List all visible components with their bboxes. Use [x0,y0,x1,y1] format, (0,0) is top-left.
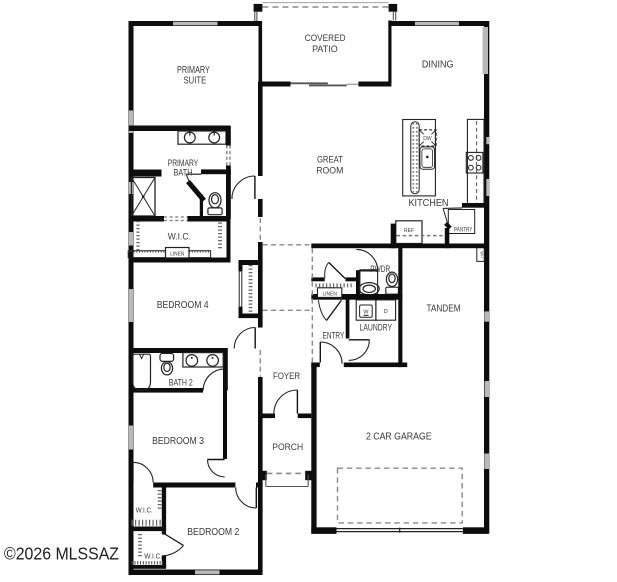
svg-text:PORCH: PORCH [272,442,303,453]
svg-text:LAUNDRY: LAUNDRY [360,323,393,333]
svg-text:PRIMARY: PRIMARY [168,158,199,168]
svg-text:D: D [384,309,388,315]
svg-text:SUITE: SUITE [184,75,207,86]
svg-text:BEDROOM 4: BEDROOM 4 [157,300,209,311]
svg-text:PWDR: PWDR [370,264,390,274]
svg-text:LINEN: LINEN [322,291,337,297]
svg-text:KITCHEN: KITCHEN [408,198,448,209]
svg-text:DINING: DINING [422,59,454,70]
svg-text:©2026 MLSSAZ: ©2026 MLSSAZ [4,544,119,564]
svg-text:BATH 2: BATH 2 [169,377,193,387]
svg-text:PATIO: PATIO [312,44,338,55]
svg-text:REF: REF [404,228,414,234]
svg-text:WH: WH [480,251,484,258]
svg-text:W.I.C.: W.I.C. [168,232,191,242]
svg-text:LINEN: LINEN [170,251,184,257]
svg-text:COVERED: COVERED [305,33,346,44]
svg-text:TANDEM: TANDEM [426,304,460,315]
svg-text:2 CAR GARAGE: 2 CAR GARAGE [366,432,432,443]
svg-text:DW: DW [423,136,432,142]
svg-text:W.I.C.: W.I.C. [136,505,153,514]
svg-text:W.I.C.: W.I.C. [144,552,162,561]
svg-text:BATH: BATH [174,168,193,178]
svg-text:W: W [363,310,369,316]
svg-text:FOYER: FOYER [273,371,300,382]
svg-text:BEDROOM 2: BEDROOM 2 [187,527,239,538]
svg-text:ENTRY: ENTRY [323,331,345,341]
svg-text:PANTRY: PANTRY [454,228,472,234]
svg-text:BEDROOM 3: BEDROOM 3 [152,436,204,447]
svg-text:ROOM: ROOM [316,166,343,176]
svg-text:GREAT: GREAT [317,155,343,165]
